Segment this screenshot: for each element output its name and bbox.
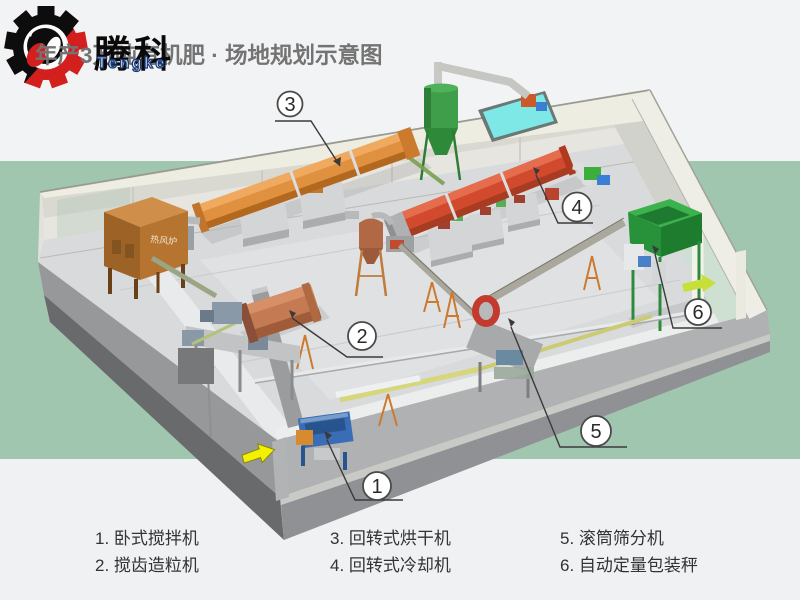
svg-text:3: 3 — [284, 94, 295, 116]
svg-text:5: 5 — [590, 421, 601, 443]
svg-text:6: 6 — [692, 302, 703, 324]
svg-text:2: 2 — [356, 326, 367, 348]
svg-text:4: 4 — [571, 197, 582, 219]
svg-text:1: 1 — [371, 476, 382, 498]
